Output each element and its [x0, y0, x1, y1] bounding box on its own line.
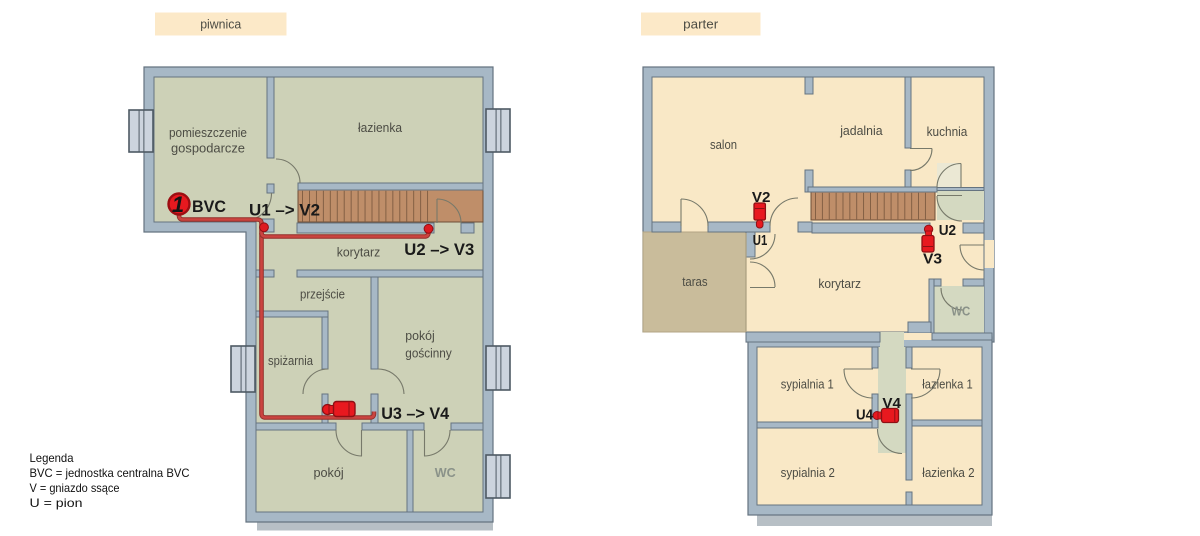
svg-text:V4: V4: [882, 395, 901, 412]
svg-text:spiżarnia: spiżarnia: [268, 353, 314, 368]
svg-text:gościnny: gościnny: [405, 346, 452, 361]
svg-text:taras: taras: [682, 274, 708, 289]
svg-text:salon: salon: [710, 137, 737, 152]
svg-text:BVC: BVC: [192, 197, 226, 216]
svg-text:sypialnia 1: sypialnia 1: [781, 377, 834, 392]
svg-text:łazienka: łazienka: [358, 120, 403, 135]
svg-text:U = pion: U = pion: [30, 496, 83, 510]
svg-text:łazienka 1: łazienka 1: [922, 377, 972, 392]
svg-text:pomieszczenie: pomieszczenie: [169, 125, 247, 140]
svg-text:U2 –> V3: U2 –> V3: [404, 240, 474, 259]
svg-text:U3 –> V4: U3 –> V4: [381, 404, 450, 423]
svg-text:sypialnia 2: sypialnia 2: [781, 465, 835, 480]
svg-text:U4: U4: [856, 407, 874, 424]
svg-text:WC: WC: [435, 465, 457, 480]
svg-text:V3: V3: [923, 251, 942, 268]
svg-text:korytarz: korytarz: [337, 245, 381, 260]
svg-text:łazienka 2: łazienka 2: [922, 465, 974, 480]
svg-text:parter: parter: [683, 17, 719, 32]
svg-text:U1 –> V2: U1 –> V2: [249, 201, 320, 220]
svg-text:piwnica: piwnica: [200, 17, 242, 32]
svg-text:korytarz: korytarz: [818, 276, 861, 291]
svg-text:U1: U1: [753, 232, 768, 249]
svg-text:WC: WC: [951, 304, 971, 319]
svg-text:kuchnia: kuchnia: [927, 124, 968, 139]
svg-text:BVC = jednostka centralna BVC: BVC = jednostka centralna BVC: [30, 466, 190, 480]
svg-text:przejście: przejście: [300, 287, 345, 302]
svg-text:gospodarcze: gospodarcze: [171, 141, 245, 156]
svg-text:Legenda: Legenda: [30, 451, 74, 465]
svg-text:jadalnia: jadalnia: [839, 123, 883, 138]
svg-text:V2: V2: [752, 189, 771, 206]
svg-text:U2: U2: [939, 222, 956, 239]
svg-text:V = gniazdo ssące: V = gniazdo ssące: [30, 481, 120, 495]
svg-text:pokój: pokój: [313, 465, 343, 480]
svg-text:pokój: pokój: [405, 328, 435, 343]
svg-text:1: 1: [172, 192, 184, 217]
